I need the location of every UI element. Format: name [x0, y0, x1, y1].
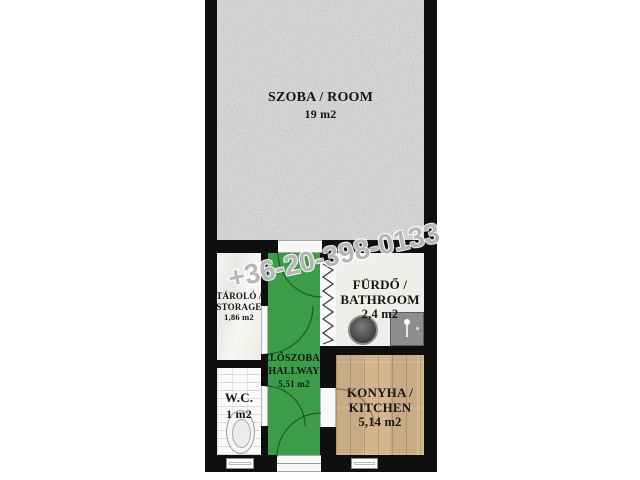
- room-name-en: STORAGE: [209, 302, 269, 313]
- room-area: 1 m2: [213, 406, 265, 422]
- wall-bathroom-kitchen: [336, 346, 424, 355]
- room-name: KONYHA /: [330, 385, 430, 400]
- room-name-en: KITCHEN: [330, 400, 430, 415]
- room-name-en: BATHROOM: [330, 292, 430, 307]
- room-area: 5,14 m2: [330, 415, 430, 430]
- room-area: 2,4 m2: [330, 307, 430, 322]
- room-name: SZOBA / ROOM: [217, 89, 424, 106]
- room-area: 1,86 m2: [209, 312, 269, 323]
- label-wc: W.C. 1 m2: [213, 390, 265, 422]
- label-bathroom: FÜRDŐ / BATHROOM 2,4 m2: [330, 277, 430, 322]
- wall-hallway-kitchen-lower: [320, 427, 336, 455]
- floor-plan: SZOBA / ROOM 19 m2 TÁROLÓ / STORAGE 1,86…: [0, 0, 640, 480]
- window-frame-wc: [226, 458, 254, 469]
- room-area: 19 m2: [217, 106, 424, 123]
- room-name: ELŐSZOBA /: [262, 352, 326, 365]
- room-area: 5,51 m2: [262, 378, 326, 391]
- label-szoba: SZOBA / ROOM 19 m2: [217, 89, 424, 123]
- wall-storage-wc: [205, 360, 268, 368]
- window-frame-kitchen: [351, 458, 378, 469]
- room-name-en: HALLWAY: [262, 365, 326, 378]
- label-kitchen: KONYHA / KITCHEN 5,14 m2: [330, 385, 430, 430]
- room-name: FÜRDŐ /: [330, 277, 430, 292]
- label-hallway: ELŐSZOBA / HALLWAY 5,51 m2: [262, 352, 326, 391]
- wall-wc-hallway-lower: [261, 426, 268, 455]
- entrance-door-opening: [277, 455, 321, 472]
- room-name: W.C.: [213, 390, 265, 406]
